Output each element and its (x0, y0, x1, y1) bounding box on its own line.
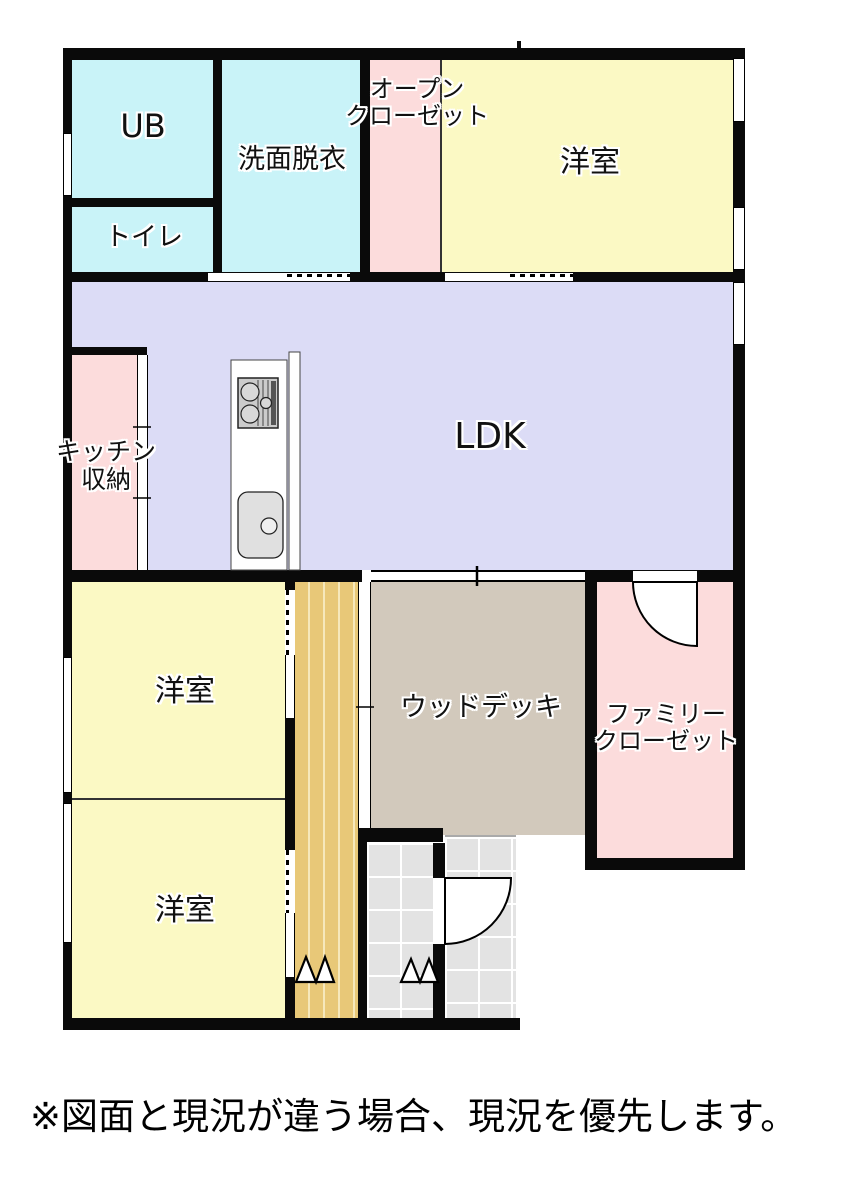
room-ldk-label: LDK (454, 417, 525, 457)
washroom-sliding-door (287, 273, 350, 281)
entrance-genkan (367, 843, 433, 1018)
wall-top-tick (517, 41, 521, 48)
bedroom-mid-sliding-door (285, 590, 295, 655)
window-bedroom-bottom (63, 803, 72, 943)
bedroom-mid-door-opening (285, 655, 295, 718)
wall-ldk-bottom-left (63, 570, 362, 582)
room-kitchen-storage-label-line1: キッチン (56, 438, 156, 466)
wall-ub-toilet (63, 198, 213, 207)
disclaimer-text: ※図面と現況が違う場合、現況を優先します。 (30, 1086, 797, 1140)
wall-hallway-genkan (358, 842, 367, 1018)
room-open-closet-label-line1: オープン (345, 76, 489, 103)
ldk-deck-glass-door (371, 570, 585, 582)
wall-deck-bottom (358, 828, 443, 842)
room-family-closet-label: ファミリー クローゼット (594, 701, 738, 755)
room-bedroom-top-label: 洋室 (560, 146, 620, 180)
room-family-closet-label-line2: クローゼット (594, 728, 738, 755)
entrance-porch (445, 835, 516, 1018)
washroom-door-opening (208, 273, 287, 281)
wall-bottom (63, 1018, 520, 1030)
window-bedroom-top-2 (733, 207, 745, 270)
room-bedroom-mid-label: 洋室 (155, 675, 215, 709)
window-bedroom-top-1 (733, 58, 745, 122)
wall-top (63, 48, 745, 60)
room-open-closet-label: オープン クローゼット (345, 76, 489, 130)
window-ldk (733, 282, 745, 345)
room-washroom-label: 洗面脱衣 (238, 145, 346, 175)
entrance-door-opening (433, 878, 445, 944)
room-open-closet-label-line2: クローゼット (345, 103, 489, 130)
wall-upper-band-bottom (63, 272, 745, 282)
room-bedroom-bottom-label: 洋室 (155, 894, 215, 928)
bedroom-bottom-door-opening (285, 913, 295, 977)
hallway-deck-glass-door (358, 582, 371, 828)
bedroom-top-sliding-door (510, 273, 573, 281)
room-kitchen-storage-label-line2: 収納 (56, 466, 156, 494)
family-closet-door-opening (633, 571, 697, 582)
bedroom-bottom-sliding-door (285, 850, 295, 913)
kitchen-storage-top-wall (63, 347, 147, 355)
wall-closet-bottom (585, 858, 745, 870)
room-ldk (72, 282, 735, 570)
floor-plan-page: UB トイレ 洗面脱衣 オープン クローゼット 洋室 LDK キッチン 収納 洋… (0, 0, 841, 1191)
room-toilet-label: トイレ (105, 223, 183, 252)
wall-ub-washroom (213, 60, 222, 272)
room-ub-label: UB (120, 109, 165, 145)
window-ub (63, 133, 72, 196)
hallway (295, 582, 358, 1018)
bedroom-top-door-opening (445, 273, 510, 281)
window-bedroom-mid (63, 657, 72, 793)
room-family-closet-label-line1: ファミリー (594, 701, 738, 728)
room-kitchen-storage-label: キッチン 収納 (56, 438, 156, 494)
wood-deck-label: ウッドデッキ (400, 693, 562, 723)
